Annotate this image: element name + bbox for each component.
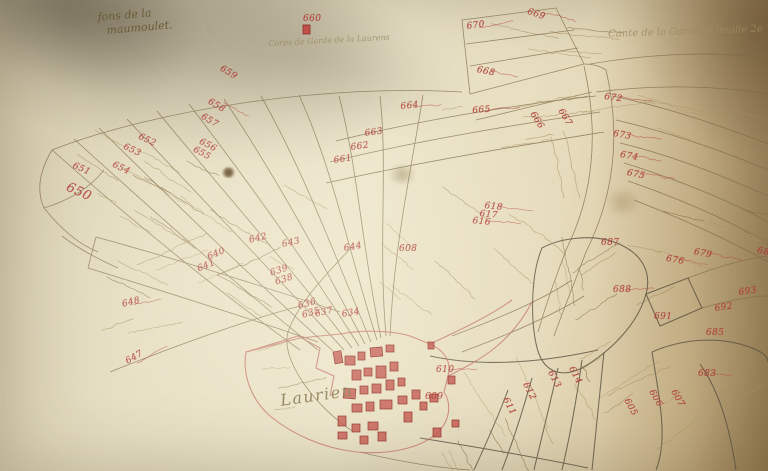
village-building: [386, 380, 394, 390]
village-building: [380, 400, 392, 409]
village-red-outline: [245, 300, 532, 453]
village-building: [360, 386, 368, 394]
cadastral-map-photo: fons de la maumoulet. Corps de Garde de …: [0, 0, 768, 471]
village-building: [448, 376, 455, 384]
parcel-number-616: 616: [472, 216, 491, 228]
village-building: [338, 416, 346, 426]
parcel-number-691: 691: [654, 312, 672, 322]
village-building: [370, 347, 383, 357]
village-building: [433, 428, 441, 437]
village-building: [352, 404, 362, 412]
village-building: [372, 384, 381, 393]
village-building: [404, 412, 412, 422]
village-building: [358, 352, 365, 360]
parcel-number-664: 664: [400, 100, 419, 112]
village-building: [412, 390, 420, 399]
village-building: [390, 362, 398, 371]
village-building: [360, 436, 368, 444]
village-building: [352, 424, 360, 432]
parcel-lines-dark: [420, 238, 768, 470]
village-building: [452, 420, 459, 427]
parcel-number-660: 660: [303, 14, 321, 24]
village-building: [398, 378, 405, 386]
parcel-number-610: 610: [436, 365, 454, 375]
parcel-number-609: 609: [425, 392, 443, 402]
village-building: [378, 432, 386, 441]
village-building: [345, 356, 355, 365]
parcel-number-665: 665: [472, 105, 491, 116]
parcel-number-608: 608: [399, 244, 417, 254]
village-building: [398, 396, 407, 404]
parcel-number-685: 685: [706, 328, 724, 338]
village-building: [338, 432, 347, 439]
parcel-number-688: 688: [613, 285, 631, 295]
village-building: [352, 370, 361, 380]
village-building: [368, 422, 378, 430]
parcel-number-687: 687: [601, 238, 619, 248]
village-building: [386, 345, 394, 352]
village-building: [376, 366, 386, 378]
village-building: [366, 402, 374, 411]
village-building: [420, 402, 427, 410]
village-building: [333, 351, 343, 364]
village-building: [428, 342, 434, 349]
village-building: [364, 368, 372, 376]
parcel-number-683: 683: [698, 369, 716, 379]
